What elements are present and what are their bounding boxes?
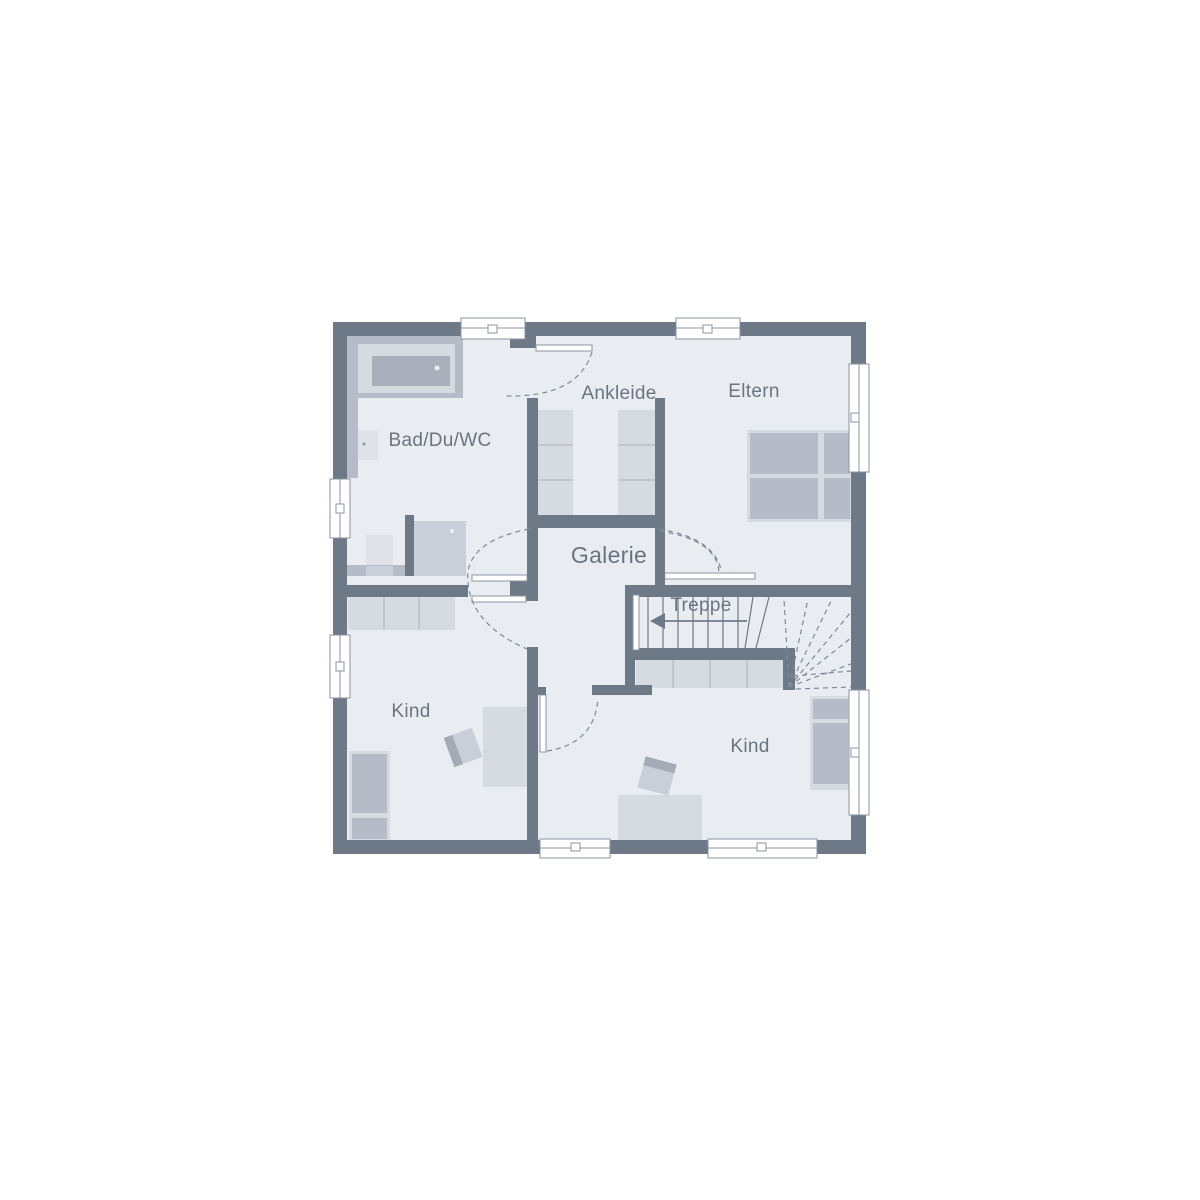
label-galerie: Galerie xyxy=(571,542,647,568)
wall-top xyxy=(333,322,866,336)
washbasin-drain xyxy=(362,442,365,445)
pillow-bottom xyxy=(824,478,850,519)
label-kind-links: Kind xyxy=(391,701,430,722)
window-left-1 xyxy=(330,479,350,538)
wall-ankleide-bottom xyxy=(527,515,665,528)
label-bad: Bad/Du/WC xyxy=(388,430,491,451)
bad-sliding-door-leaf xyxy=(472,575,527,581)
label-treppe: Treppe xyxy=(670,595,731,616)
stair-railing xyxy=(633,595,639,650)
floor-plan-drawing: Bad/Du/WC Ankleide Eltern Galerie Treppe… xyxy=(0,0,1200,1200)
wall-bath-partition xyxy=(405,515,414,576)
floor-plan-page: Bad/Du/WC Ankleide Eltern Galerie Treppe… xyxy=(0,0,1200,1200)
bed-pillow xyxy=(352,818,387,839)
ankleide-door-leaf xyxy=(536,345,592,351)
mattress-top xyxy=(750,433,818,474)
label-eltern: Eltern xyxy=(728,381,779,402)
shower-drain xyxy=(450,529,454,533)
window-top-1 xyxy=(461,318,525,339)
bed-mattress xyxy=(352,754,387,813)
wall-left xyxy=(333,322,347,854)
wardrobe-left xyxy=(538,410,573,515)
wall-closet-top xyxy=(625,648,795,660)
kind-right-door-leaf xyxy=(540,695,546,752)
wall-bad-kind xyxy=(347,585,468,597)
label-ankleide: Ankleide xyxy=(581,383,656,404)
window-top-2 xyxy=(676,318,740,339)
toilet xyxy=(366,535,393,565)
bathtub-basin xyxy=(372,356,450,386)
wall-kind-top xyxy=(592,685,652,695)
window-bottom-1 xyxy=(540,839,610,858)
window-right-1 xyxy=(849,364,869,472)
kind-left-sliding-door-leaf xyxy=(472,596,526,602)
mattress-bottom xyxy=(750,478,818,519)
bathtub-platform-strip xyxy=(347,398,358,478)
wall-kind-kind xyxy=(527,647,538,840)
window-right-2 xyxy=(849,690,869,815)
window-bottom-2 xyxy=(708,839,817,858)
gallery-railing xyxy=(665,573,755,579)
bed-pillow xyxy=(813,699,848,719)
desk xyxy=(618,795,702,840)
eltern-furniture xyxy=(747,430,852,522)
wall-ankleide-eltern xyxy=(655,398,665,585)
label-kind-rechts: Kind xyxy=(730,736,769,757)
washbasin xyxy=(358,430,378,460)
wall-eltern-treppe xyxy=(627,585,852,597)
shower xyxy=(414,521,466,576)
bed-mattress xyxy=(813,723,848,784)
wardrobe xyxy=(348,597,455,630)
wall-door-stub xyxy=(538,687,546,695)
toilet-cistern xyxy=(366,566,393,576)
wall-bad-ankleide xyxy=(527,398,538,601)
bathtub-drain xyxy=(435,366,440,371)
wardrobe-right xyxy=(618,410,655,515)
desk xyxy=(483,707,528,787)
pillow-top xyxy=(824,433,850,474)
window-left-2 xyxy=(330,635,350,698)
